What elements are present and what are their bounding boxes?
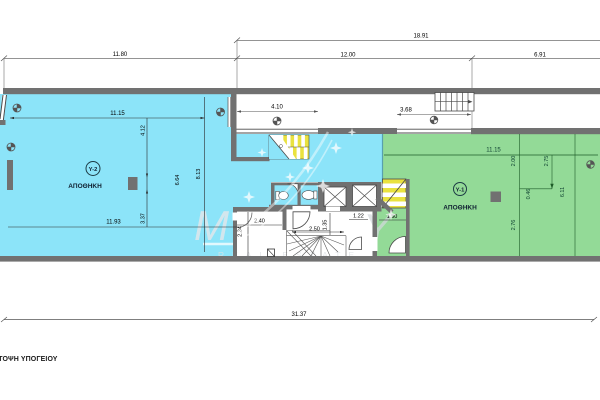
svg-text:11.15: 11.15 (110, 111, 125, 117)
svg-text:2.00: 2.00 (511, 156, 517, 167)
svg-text:6.64: 6.64 (175, 175, 181, 186)
svg-text:4.12: 4.12 (141, 125, 147, 136)
svg-text:Y-2: Y-2 (89, 167, 98, 173)
svg-text:2.50: 2.50 (309, 227, 320, 233)
svg-text:6.91: 6.91 (534, 53, 546, 59)
svg-text:ΑΠΟΘΗΚΗ: ΑΠΟΘΗΚΗ (68, 183, 102, 190)
svg-text:1.22: 1.22 (353, 214, 364, 220)
svg-text:4.10: 4.10 (271, 105, 283, 111)
svg-text:2.75: 2.75 (544, 156, 550, 167)
svg-text:6.11: 6.11 (560, 187, 566, 197)
svg-text:1.35: 1.35 (323, 220, 329, 231)
svg-text:12.00: 12.00 (340, 53, 356, 59)
svg-text:3.37: 3.37 (141, 213, 147, 224)
svg-text:11.93: 11.93 (106, 220, 121, 226)
svg-text:2.76: 2.76 (511, 220, 517, 231)
svg-text:11.15: 11.15 (486, 148, 501, 154)
svg-text:ΚΑΤΟΨΗ ΥΠΟΓΕΙΟΥ: ΚΑΤΟΨΗ ΥΠΟΓΕΙΟΥ (0, 356, 58, 363)
svg-text:31.37: 31.37 (291, 312, 307, 318)
svg-text:18.91: 18.91 (413, 34, 429, 40)
svg-text:8.13: 8.13 (196, 169, 202, 180)
svg-text:0.46: 0.46 (526, 189, 532, 200)
svg-text:Y-1: Y-1 (456, 187, 465, 193)
svg-text:11.80: 11.80 (113, 52, 128, 58)
svg-text:M: M (194, 202, 229, 249)
svg-text:ΑΠΟΘΗΚΗ: ΑΠΟΘΗΚΗ (443, 205, 477, 212)
svg-text:3.68: 3.68 (400, 108, 412, 114)
